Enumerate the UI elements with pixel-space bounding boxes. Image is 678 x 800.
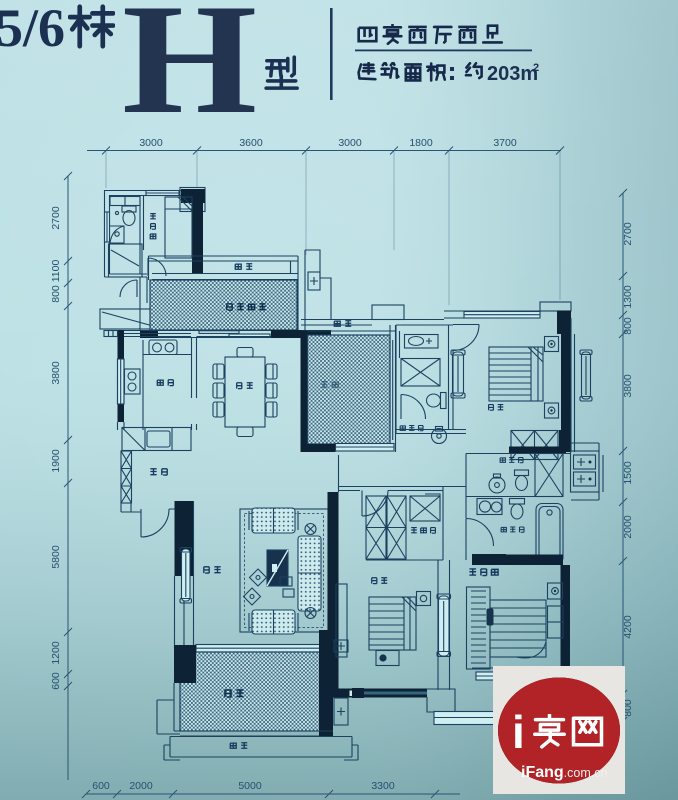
svg-text:2700: 2700 bbox=[50, 206, 62, 230]
svg-text:2000: 2000 bbox=[129, 780, 153, 792]
svg-text:4200: 4200 bbox=[622, 615, 634, 639]
svg-text:600: 600 bbox=[92, 780, 110, 792]
svg-text:1200: 1200 bbox=[50, 641, 62, 665]
svg-text:5800: 5800 bbox=[50, 545, 62, 569]
svg-text:3700: 3700 bbox=[493, 137, 517, 149]
svg-text:H: H bbox=[122, 0, 257, 146]
svg-text:800: 800 bbox=[622, 317, 634, 335]
svg-text:1300: 1300 bbox=[622, 285, 634, 309]
svg-text:5/6: 5/6 bbox=[0, 0, 65, 58]
svg-text:600: 600 bbox=[50, 672, 62, 690]
svg-text:5000: 5000 bbox=[238, 780, 262, 792]
svg-text:1100: 1100 bbox=[50, 260, 62, 283]
svg-text:3800: 3800 bbox=[622, 374, 634, 398]
svg-text:i: i bbox=[512, 706, 525, 758]
svg-text:1900: 1900 bbox=[50, 449, 62, 473]
svg-text:iFang.com.cn: iFang.com.cn bbox=[521, 764, 607, 781]
svg-text:2700: 2700 bbox=[622, 222, 634, 246]
svg-text:2: 2 bbox=[533, 62, 539, 74]
svg-text:203m: 203m bbox=[487, 63, 538, 85]
svg-text:800: 800 bbox=[50, 285, 62, 303]
svg-text:2000: 2000 bbox=[622, 515, 634, 539]
svg-text:1800: 1800 bbox=[409, 137, 433, 149]
svg-text:3000: 3000 bbox=[338, 137, 362, 149]
svg-text:3300: 3300 bbox=[371, 780, 395, 792]
svg-text:3800: 3800 bbox=[50, 361, 62, 385]
svg-text:1500: 1500 bbox=[622, 461, 634, 485]
